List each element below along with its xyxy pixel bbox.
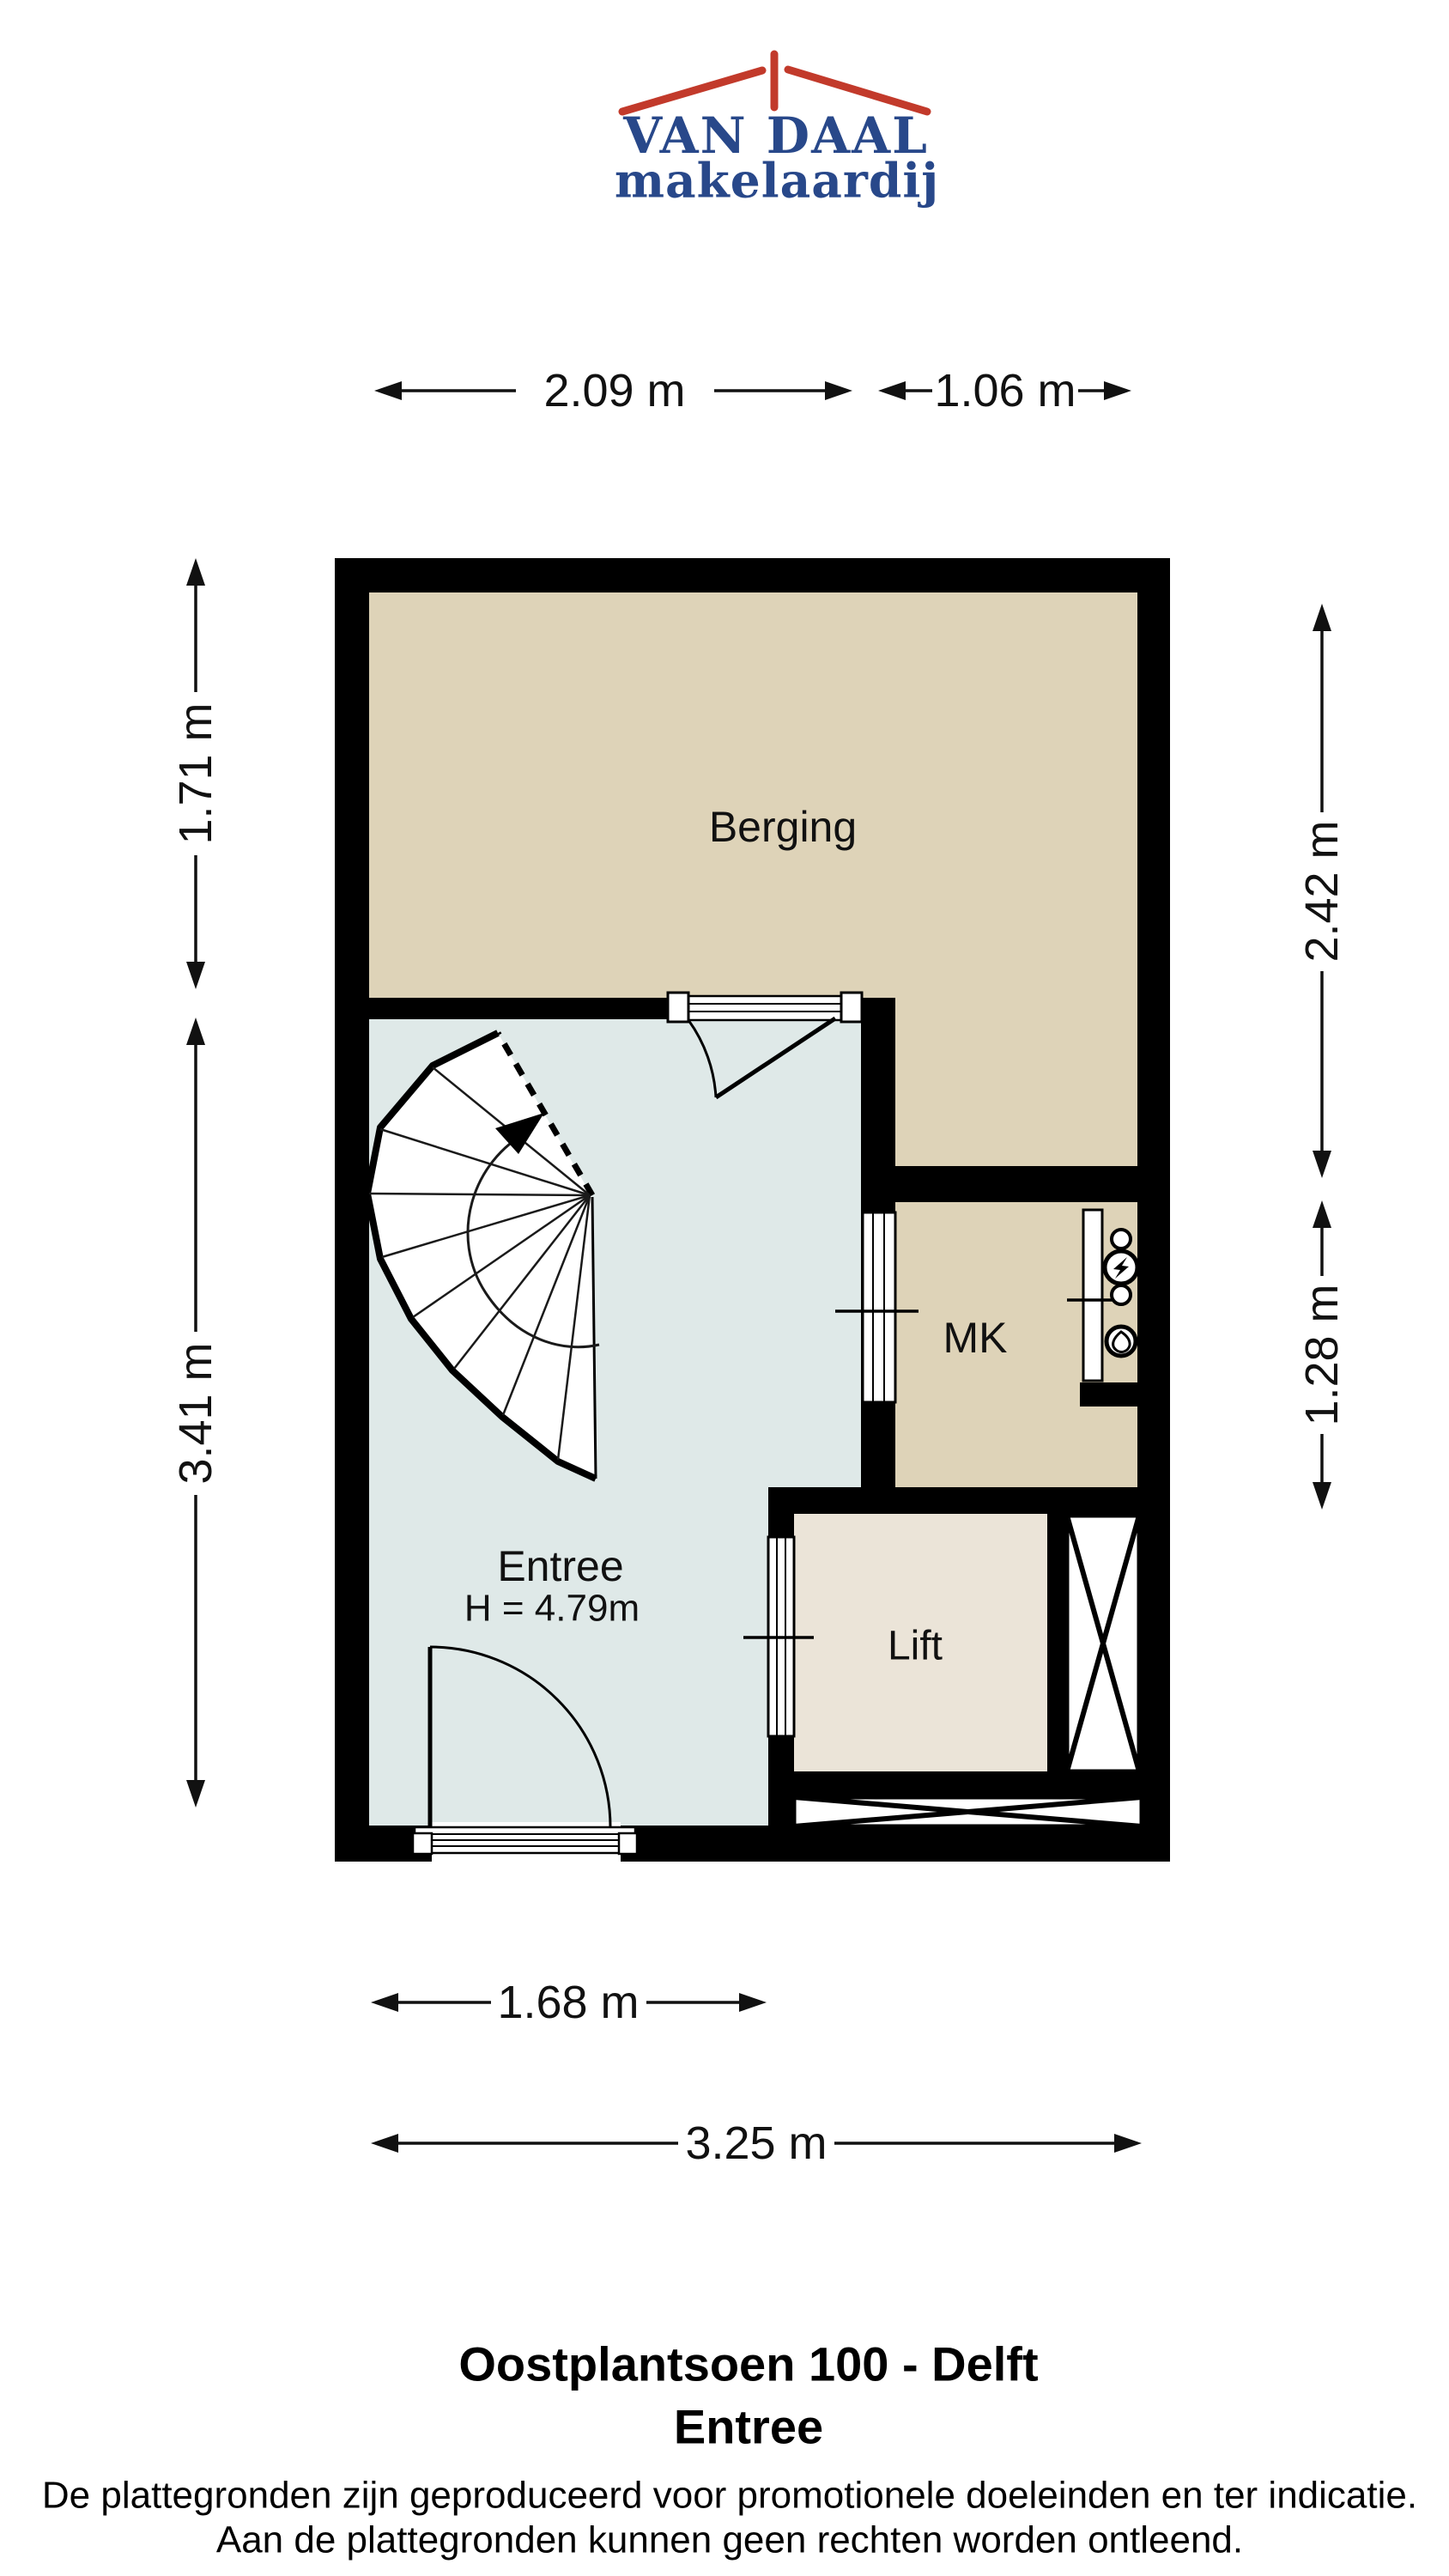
room-berging-floor-right-column <box>895 998 1137 1166</box>
entry-door-jamb <box>413 1833 432 1854</box>
dimension-label: 1.71 m <box>170 702 221 844</box>
void-strip-symbol <box>794 1797 1142 1826</box>
dimension-label: 1.06 m <box>934 365 1076 416</box>
floor-plan: Berging MK Entree H = 4.79m Lift <box>335 558 1170 1862</box>
room-lift-label: Lift <box>888 1624 943 1669</box>
meter-cupboard-panel <box>1083 1210 1102 1381</box>
dimension-label: 2.42 m <box>1296 820 1348 962</box>
address-title: Oostplantsoen 100 - Delft <box>458 2337 1038 2391</box>
arrow-left-icon <box>374 381 402 400</box>
dimension-top-left: 2.09 m <box>374 365 852 416</box>
arrow-down-icon <box>186 962 205 989</box>
mk-window-glass <box>863 1212 895 1402</box>
dimension-right-lower: 1.28 m <box>1296 1200 1348 1510</box>
disclaimer-line-1: De plattegronden zijn geproduceerd voor … <box>42 2475 1417 2517</box>
room-mk-label: MK <box>943 1314 1008 1362</box>
berging-door-jamb <box>668 993 688 1022</box>
berging-door-jamb <box>841 993 862 1022</box>
floorplan-page: VAN DAAL makelaardij <box>0 0 1449 2576</box>
room-berging-label: Berging <box>709 803 857 851</box>
dimension-label: 2.09 m <box>543 365 685 416</box>
arrow-down-icon <box>1313 1482 1331 1510</box>
logo-tagline-text: makelaardij <box>615 153 939 209</box>
dimension-left-lower: 3.41 m <box>170 1018 221 1807</box>
lift-shaft-symbol <box>1067 1516 1139 1771</box>
room-berging-floor <box>369 592 1137 998</box>
dimension-bottom-outer: 3.25 m <box>371 2117 1142 2169</box>
logo-roof-right-icon <box>788 70 927 112</box>
arrow-left-icon <box>878 381 906 400</box>
arrow-down-icon <box>186 1780 205 1807</box>
arrow-right-icon <box>1114 2134 1142 2153</box>
dimension-right-upper: 2.42 m <box>1296 604 1348 1178</box>
meter-small-circle-icon <box>1112 1285 1131 1304</box>
meter-cupboard-base-wall <box>1080 1382 1142 1406</box>
dimension-bottom-inner: 1.68 m <box>371 1977 767 2028</box>
room-entree-label: Entree <box>497 1542 623 1590</box>
dimension-label: 1.68 m <box>497 1977 639 2028</box>
arrow-down-icon <box>1313 1151 1331 1178</box>
arrow-up-icon <box>1313 604 1331 631</box>
logo-roof-left-icon <box>622 70 762 112</box>
arrow-up-icon <box>186 558 205 586</box>
floor-name-title: Entree <box>674 2400 823 2454</box>
meter-small-circle-icon <box>1112 1230 1131 1249</box>
disclaimer-line-2: Aan de plattegronden kunnen geen rechten… <box>216 2519 1243 2561</box>
dimension-left-upper: 1.71 m <box>170 558 221 989</box>
arrow-left-icon <box>371 2134 398 2153</box>
arrow-right-icon <box>1104 381 1131 400</box>
arrow-up-icon <box>186 1018 205 1045</box>
dimension-label: 3.25 m <box>685 2117 827 2169</box>
arrow-right-icon <box>825 381 852 400</box>
logo: VAN DAAL makelaardij <box>615 54 939 209</box>
dimension-top-right: 1.06 m <box>878 365 1131 416</box>
berging-door-slab <box>688 996 842 1020</box>
arrow-right-icon <box>739 1993 767 2012</box>
entry-door-jamb <box>619 1833 637 1854</box>
arrow-up-icon <box>1313 1200 1331 1228</box>
dimension-label: 3.41 m <box>170 1342 221 1484</box>
footer: Oostplantsoen 100 - Delft Entree De plat… <box>42 2337 1417 2561</box>
dimension-label: 1.28 m <box>1296 1284 1348 1425</box>
arrow-left-icon <box>371 1993 398 2012</box>
room-entree-height-label: H = 4.79m <box>464 1588 640 1630</box>
